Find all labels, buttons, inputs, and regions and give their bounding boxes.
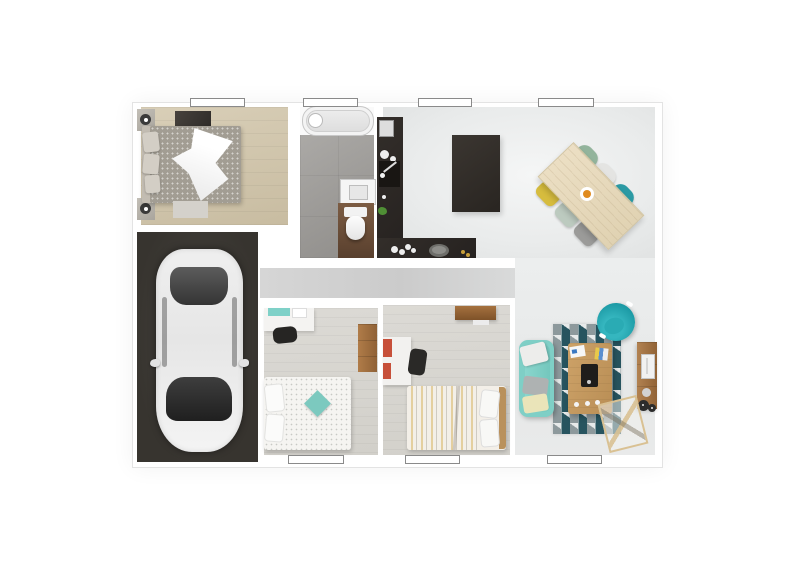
washbasin [340, 179, 376, 205]
pillow [264, 383, 286, 413]
pot-icon [380, 150, 389, 159]
magazine-icon [594, 347, 608, 360]
bedside-rug [173, 201, 208, 218]
desk-shelf-white [292, 308, 307, 318]
car-side-window [162, 297, 167, 367]
window-top-kitchen [418, 98, 472, 107]
jar-icon [466, 253, 470, 257]
fruit-bowl-icon [583, 190, 591, 198]
bedroom2-desk-chair [272, 326, 298, 344]
cup-icon [574, 402, 579, 407]
shelf-bracket [473, 320, 489, 325]
window-top-dining [538, 98, 594, 107]
pillow [479, 418, 500, 448]
hallway-floor [260, 268, 515, 298]
window-bottom-bedroom2 [288, 455, 344, 464]
tub-faucet-icon [308, 113, 323, 128]
tv-icon [641, 354, 655, 379]
pillow [264, 413, 285, 443]
speaker-icon [642, 388, 651, 397]
kitchen-counter-left [377, 117, 403, 258]
window-bottom-bedroom3 [405, 455, 460, 464]
record-icon [648, 404, 656, 412]
car-side-window [232, 297, 237, 367]
bedroom3-wall-shelf [455, 306, 496, 320]
plant-icon [378, 207, 387, 215]
microwave-icon [379, 120, 394, 137]
bedroom2-wardrobe [358, 324, 377, 372]
pillow [142, 153, 160, 174]
plate-icon [411, 248, 416, 253]
floor-plan [133, 103, 662, 467]
faucet-base-icon [380, 173, 385, 178]
striped-duvet [407, 386, 481, 450]
car-windshield [166, 377, 232, 421]
knob-icon [382, 195, 386, 199]
lamp-icon [140, 114, 151, 125]
double-bed [142, 126, 241, 203]
car-rear-window [170, 267, 228, 305]
bedroom3-desk-chair [407, 348, 427, 376]
window-top-bedroom1 [190, 98, 245, 107]
toilet-bowl [346, 216, 365, 240]
window-top-bathroom [303, 98, 358, 107]
car-mirror [150, 359, 160, 367]
desk-red-drawer [383, 363, 391, 379]
lamp-icon [140, 203, 151, 214]
basin [349, 185, 368, 200]
car-mirror [239, 359, 249, 367]
tray-icon [429, 244, 449, 257]
plate-icon [399, 249, 405, 255]
desk-shelf-teal [268, 308, 290, 316]
pillow [144, 174, 160, 193]
plate-icon [391, 246, 398, 253]
desk-red-drawer [383, 339, 392, 357]
kitchen-island [452, 135, 500, 212]
paper-icon [569, 345, 586, 358]
pillow [478, 389, 500, 419]
cup-icon [585, 401, 590, 406]
tablet-icon [581, 364, 598, 387]
bed-headboard [499, 387, 506, 449]
car-top-view [156, 249, 243, 452]
jar-icon [461, 250, 465, 254]
pillow [142, 131, 160, 153]
window-bottom-living [547, 455, 602, 464]
